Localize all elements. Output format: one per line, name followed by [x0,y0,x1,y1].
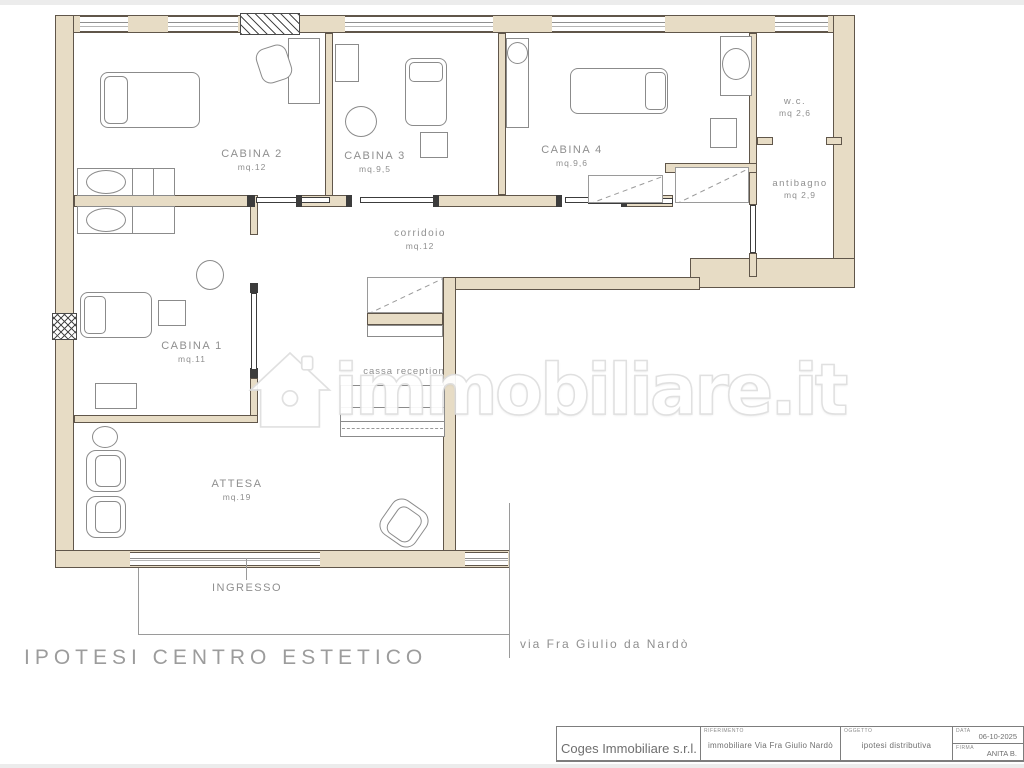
title-block-date-row: DATA 06-10-2025 [953,727,1023,743]
table [95,383,137,409]
top-edge-strip [0,0,1024,5]
room-name: CABINA 4 [512,144,632,158]
partition-wc-stub [749,253,757,277]
door-jamb [433,195,439,207]
label-cassa-reception: cassa reception [334,366,474,377]
oggetto-label: OGGETTO [844,728,872,734]
window [168,16,238,32]
hatched-wall-section [52,313,77,340]
firma-value: ANITA B. [987,749,1017,758]
stool [345,106,377,137]
desk-line [340,421,445,422]
desk-dashed-line [342,428,443,429]
desk-line [340,407,445,408]
reception-desk [340,385,445,437]
room-label-cabina3: CABINA 3 mq.9,5 [315,150,435,174]
room-name: INGRESSO [187,582,307,596]
antibagno-door-leaf [750,205,756,253]
room-area: mq.19 [177,492,297,503]
room-area: mq 2,6 [745,108,845,119]
sink [86,170,126,194]
porch-line-left [138,568,139,634]
room-label-wc: w.c. mq 2,6 [745,96,845,119]
coffee-table [92,426,118,448]
cabina1-bottom-wall [74,415,258,423]
bed-pillow [84,296,106,334]
porch-line-bottom [138,634,509,635]
stool [196,260,224,290]
room-area: mq.12 [360,241,480,252]
wc-divider-stub [826,137,842,145]
ingresso-leader-line [246,558,247,580]
room-area: mq 2,9 [740,190,860,201]
partition-cabina2-3 [325,33,333,207]
bottom-edge-strip [0,764,1024,768]
wc-divider-stub [757,137,773,145]
sliding-door-leaf [360,197,436,203]
wing-bottom-wall [690,258,855,288]
room-label-attesa: ATTESA mq.19 [177,478,297,502]
storefront-window [130,552,320,566]
chair-seat [384,503,425,545]
bed-pillow [104,76,128,124]
room-label-cabina1: CABINA 1 mq.11 [132,340,252,364]
closet-band [367,313,443,325]
date-value: 06-10-2025 [979,732,1017,741]
corridor-wall [437,195,560,207]
room-name: corridoio [360,228,480,241]
cabina4-sliding-symbol [588,175,663,203]
window [345,16,493,32]
room-name: CABINA 2 [192,148,312,162]
dashed-diagonal [676,168,748,202]
room-name: w.c. [745,96,845,108]
sliding-door-leaf [256,197,330,203]
room-label-cabina2: CABINA 2 mq.12 [192,148,312,172]
bed-pillow [645,72,666,110]
counter-divider [132,168,133,196]
drawing-title: IPOTESI CENTRO ESTETICO [24,646,427,670]
dashed-diagonal [589,176,662,202]
outer-wall-left [55,15,74,568]
room-name: ATTESA [177,478,297,492]
bed-pillow [409,62,443,82]
firma-label: FIRMA [956,745,974,751]
room-label-cabina4: CABINA 4 mq.9,6 [512,144,632,168]
desk [288,38,320,104]
corridor-bottom-wall [445,277,700,290]
title-block-oggetto: OGGETTO ipotesi distributiva [840,727,952,760]
outer-wall-right-wing [833,15,855,288]
window [775,16,828,32]
room-label-antibagno: antibagno mq 2,9 [740,178,860,201]
armchair-seat [95,501,121,533]
date-label: DATA [956,728,971,734]
window [80,16,128,32]
street-label: via Fra Giulio da Nardò [520,637,720,651]
door-jamb [296,195,302,207]
door-jamb [250,283,258,293]
riferimento-label: RIFERIMENTO [704,728,744,734]
dashed-diagonal [368,278,442,312]
oggetto-value: ipotesi distributiva [841,741,952,750]
cabina4-sliding-symbol [675,167,749,203]
door-jamb [247,195,255,207]
title-block-firma-row: FIRMA ANITA B. [953,743,1023,760]
stool [507,42,528,64]
storefront-window [465,552,508,566]
cabinet [335,44,359,82]
partition-cabina3-4 [498,33,506,195]
title-block-company: Coges Immobiliare s.r.l. [557,727,700,760]
counter-divider [132,206,133,234]
door-jamb [346,195,352,207]
sink [86,208,126,232]
title-block-meta: DATA 06-10-2025 FIRMA ANITA B. [952,727,1023,760]
room-label-corridoio: corridoio mq.12 [360,228,480,251]
closet-sliding-symbol [367,277,443,313]
room-name: CABINA 3 [315,150,435,164]
room-name: antibagno [740,178,860,190]
floorplan-canvas: CABINA 2 mq.12 CABINA 3 mq.9,5 CABINA 4 … [0,0,1024,768]
room-area: mq.11 [132,354,252,365]
room-area: mq.9,5 [315,164,435,175]
chair [375,494,433,552]
closet-shelf [367,325,443,337]
washbasin [722,48,750,80]
side-table [158,300,186,326]
room-name: CABINA 1 [132,340,252,354]
house-icon [248,348,332,432]
armchair-seat [95,455,121,487]
riferimento-value: immobiliare Via Fra Giulio Nardò [701,741,840,750]
room-area: mq.9,6 [512,158,632,169]
room-area: mq.12 [192,162,312,173]
label-ingresso: INGRESSO [187,582,307,596]
title-block-riferimento: RIFERIMENTO immobiliare Via Fra Giulio N… [700,727,840,760]
hatched-wall-section [240,13,300,35]
title-block: Coges Immobiliare s.r.l. RIFERIMENTO imm… [556,726,1024,762]
street-boundary-line [509,503,510,658]
side-table [710,118,737,148]
armchair [86,450,126,492]
counter-divider [153,168,154,196]
armchair [86,496,126,538]
door-jamb [556,195,562,207]
window [552,16,665,32]
